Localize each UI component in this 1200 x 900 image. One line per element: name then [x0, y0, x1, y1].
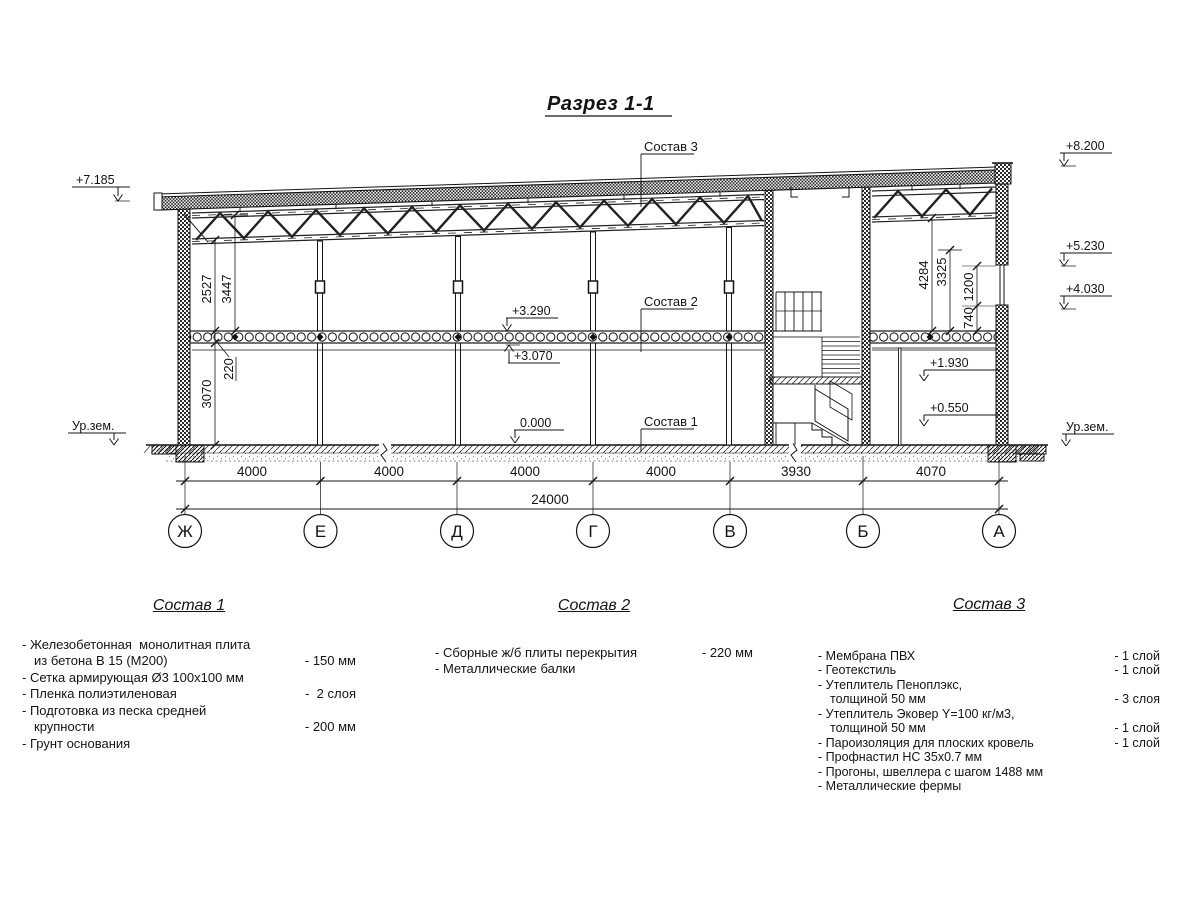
right-wall-upper — [996, 184, 1008, 265]
elevation-value: +5.230 — [1066, 239, 1105, 253]
elevation-roof-left: +7.185 — [72, 173, 130, 201]
break-symbol — [789, 444, 801, 463]
list-item: - Мембрана ПВХ- 1 слой — [818, 649, 1160, 664]
elevation-truss-right: +5.230 — [1060, 239, 1113, 266]
span-labels: 4000 4000 4000 4000 3930 4070 24000 — [237, 464, 946, 507]
callout-label: Состав 3 — [644, 139, 698, 154]
lower-flight — [773, 381, 852, 445]
parapet — [995, 163, 1011, 184]
sheet-title: Разрез 1-1 — [545, 93, 672, 116]
list-item: - Грунт основания — [22, 736, 356, 753]
list-item: - Профнастил НС 35х0.7 мм — [818, 750, 1160, 765]
left-wall — [178, 208, 190, 445]
elevation-ground-left: Ур.зем. — [68, 419, 126, 445]
elevation-landing-upper: +1.930 — [920, 356, 1001, 381]
list-item: - Сборные ж/б плиты перекрытия- 220 мм — [435, 645, 753, 662]
composition-1-title: Состав 1 — [22, 598, 356, 615]
span-dim: 4000 — [237, 464, 267, 479]
list-item: - Геотекстиль- 1 слой — [818, 663, 1160, 678]
foundation-left — [152, 445, 204, 462]
dim-bottom-chain: 4000 4000 4000 4000 3930 4070 24000 — [176, 456, 1008, 515]
elevation-value: +4.030 — [1066, 282, 1105, 296]
dim-2527: 2527 — [199, 275, 214, 304]
list-item: - Пароизоляция для плоских кровель- 1 сл… — [818, 736, 1160, 751]
dim-4284: 4284 — [916, 261, 931, 290]
axis-label: Е — [315, 522, 326, 541]
dim-ticks — [181, 477, 1003, 513]
list-item: из бетона В 15 (М200)- 150 мм — [22, 653, 356, 670]
dim-3070: 3070 — [199, 380, 214, 409]
total-span-dim: 24000 — [531, 492, 569, 507]
elevation-ground-right: Ур.зем. — [1062, 420, 1115, 446]
elevation-slab-bottom: +3.070 — [505, 345, 561, 363]
span-dim: 4000 — [646, 464, 676, 479]
axis-label: А — [993, 522, 1005, 541]
list-item: - Пленка полиэтиленовая- 2 слоя — [22, 686, 356, 703]
axis-label: Б — [857, 522, 868, 541]
callout-label: Состав 2 — [644, 294, 698, 309]
window — [996, 265, 1008, 305]
elevation-value: 0.000 — [520, 416, 551, 430]
door-head-right — [842, 187, 849, 197]
break-symbol — [379, 444, 391, 463]
upper-flight-treads — [773, 337, 860, 377]
stair-wall-right — [862, 187, 870, 445]
list-item: - Подготовка из песка средней — [22, 703, 356, 720]
elevation-beam-right: +4.030 — [1060, 282, 1113, 309]
composition-2-title: Состав 2 — [435, 598, 753, 615]
span-dim: 3930 — [781, 464, 811, 479]
list-item: - Утеплитель Пеноплэкс, — [818, 678, 1160, 693]
elevation-value: +3.070 — [514, 349, 553, 363]
elevation-value: +0.550 — [930, 401, 969, 415]
partition-wall — [899, 348, 902, 445]
axis-label: Д — [451, 522, 463, 541]
elevation-slab-top: +3.290 — [503, 304, 559, 331]
span-dim: 4000 — [374, 464, 404, 479]
roof-edge-cap — [154, 193, 162, 210]
composition-3-title: Состав 3 — [818, 598, 1160, 613]
composition-1-block: Состав 1 - Железобетонная монолитная пли… — [22, 598, 356, 752]
axis-label: Г — [588, 522, 597, 541]
elevation-floor-zero: 0.000 — [511, 416, 565, 443]
elevation-parapet-right: +8.200 — [1060, 139, 1113, 166]
dim-1200: 1200 — [961, 273, 976, 302]
elevation-value: +7.185 — [76, 173, 115, 187]
list-item: толщиной 50 мм- 3 слоя — [818, 692, 1160, 707]
ground-slab — [146, 444, 1048, 463]
elevation-value: Ур.зем. — [72, 419, 114, 433]
list-item: крупности- 200 мм — [22, 719, 356, 736]
list-item: - Прогоны, швеллера с шагом 1488 мм — [818, 765, 1160, 780]
dim-220: 220 — [221, 358, 236, 380]
elevation-value: Ур.зем. — [1066, 420, 1108, 434]
staircase — [770, 187, 862, 445]
section-drawing-svg: Разрез 1-1 — [0, 0, 1200, 575]
composition-2-block: Состав 2 - Сборные ж/б плиты перекрытия-… — [435, 598, 753, 678]
span-dim: 4000 — [510, 464, 540, 479]
dim-left-vertical: 2527 3447 220 3070 — [199, 211, 248, 449]
dim-3325: 3325 — [934, 258, 949, 287]
column-splice-plates — [316, 281, 734, 293]
dim-right-vertical: 4284 3325 1200 740 — [916, 214, 996, 335]
list-item: - Сетка армирующая Ø3 100х100 мм — [22, 670, 356, 687]
elevation-value: +1.930 — [930, 356, 969, 370]
dim-740: 740 — [961, 307, 976, 329]
stair-landing — [770, 377, 862, 384]
span-dim: 4070 — [916, 464, 946, 479]
list-item: - Утеплитель Эковер Y=100 кг/м3, — [818, 707, 1160, 722]
list-item: - Металлические фермы — [818, 779, 1160, 794]
axis-label: В — [724, 522, 735, 541]
right-wall-lower — [996, 305, 1008, 445]
dim-3447: 3447 — [219, 275, 234, 304]
axis-circles: Ж Е Д Г В Б А — [169, 515, 1016, 548]
stair-wall-left — [765, 190, 773, 445]
composition-3-block: Состав 3 - Мембрана ПВХ- 1 слой - Геотек… — [818, 598, 1160, 794]
axis-label: Ж — [177, 522, 193, 541]
list-item: - Металлические балки — [435, 661, 753, 678]
elevation-landing-lower: +0.550 — [920, 401, 1001, 426]
drawing-sheet: Разрез 1-1 — [0, 0, 1200, 900]
floor-slab-left — [190, 331, 765, 343]
elevation-value: +3.290 — [512, 304, 551, 318]
elevation-value: +8.200 — [1066, 139, 1105, 153]
upper-railing — [776, 292, 822, 331]
callout-label: Состав 1 — [644, 414, 698, 429]
column-v — [727, 228, 732, 332]
list-item: - Железобетонная монолитная плита — [22, 637, 356, 654]
section-title-text: Разрез 1-1 — [547, 93, 655, 115]
list-item: толщиной 50 мм- 1 слой — [818, 721, 1160, 736]
